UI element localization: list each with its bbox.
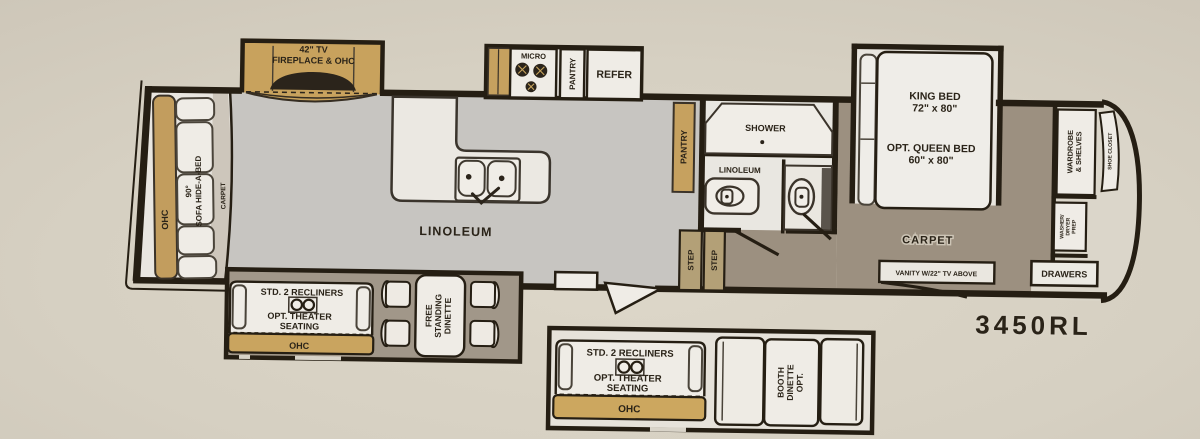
svg-text:MICRO: MICRO: [521, 52, 546, 61]
svg-text:60" x 80": 60" x 80": [908, 154, 953, 167]
svg-text:STD. 2 RECLINERS: STD. 2 RECLINERS: [586, 348, 673, 360]
svg-text:& SHELVES: & SHELVES: [1074, 131, 1084, 172]
svg-text:SHOWER: SHOWER: [745, 123, 786, 134]
svg-text:CARPET: CARPET: [220, 182, 227, 209]
svg-text:DRAWERS: DRAWERS: [1041, 269, 1087, 280]
svg-text:SOFA HIDE-A-BED: SOFA HIDE-A-BED: [194, 155, 204, 226]
svg-text:OPT.: OPT.: [795, 373, 805, 392]
svg-text:VANITY W/22" TV ABOVE: VANITY W/22" TV ABOVE: [895, 270, 977, 278]
svg-text:CARPET: CARPET: [902, 234, 953, 247]
svg-text:SHOE CLOSET: SHOE CLOSET: [1107, 132, 1114, 170]
svg-text:SEATING: SEATING: [607, 383, 649, 395]
svg-text:SEATING: SEATING: [280, 321, 319, 332]
svg-text:STEP: STEP: [686, 249, 695, 271]
svg-text:OPT. QUEEN BED: OPT. QUEEN BED: [887, 142, 976, 155]
svg-text:KING BED: KING BED: [909, 90, 961, 103]
svg-text:STD. 2 RECLINERS: STD. 2 RECLINERS: [261, 287, 344, 298]
svg-text:STEP: STEP: [710, 249, 719, 271]
svg-text:3450RL: 3450RL: [975, 309, 1092, 341]
svg-text:OHC: OHC: [618, 404, 640, 415]
svg-text:OHC: OHC: [289, 341, 310, 351]
svg-text:72" x 80": 72" x 80": [912, 102, 957, 115]
svg-text:PANTRY: PANTRY: [678, 130, 689, 164]
svg-text:42" TV: 42" TV: [299, 44, 327, 54]
svg-text:LINOLEUM: LINOLEUM: [719, 165, 761, 175]
svg-text:OPT. THEATER: OPT. THEATER: [267, 311, 332, 322]
svg-text:REFER: REFER: [596, 69, 632, 82]
svg-text:FIREPLACE & OHC: FIREPLACE & OHC: [272, 55, 355, 66]
svg-text:90°: 90°: [184, 185, 193, 197]
svg-text:PANTRY: PANTRY: [568, 57, 577, 90]
svg-text:LINOLEUM: LINOLEUM: [419, 224, 492, 239]
svg-text:DINETTE: DINETTE: [442, 297, 453, 334]
svg-text:OHC: OHC: [160, 209, 170, 230]
svg-text:PREP: PREP: [1071, 219, 1077, 234]
